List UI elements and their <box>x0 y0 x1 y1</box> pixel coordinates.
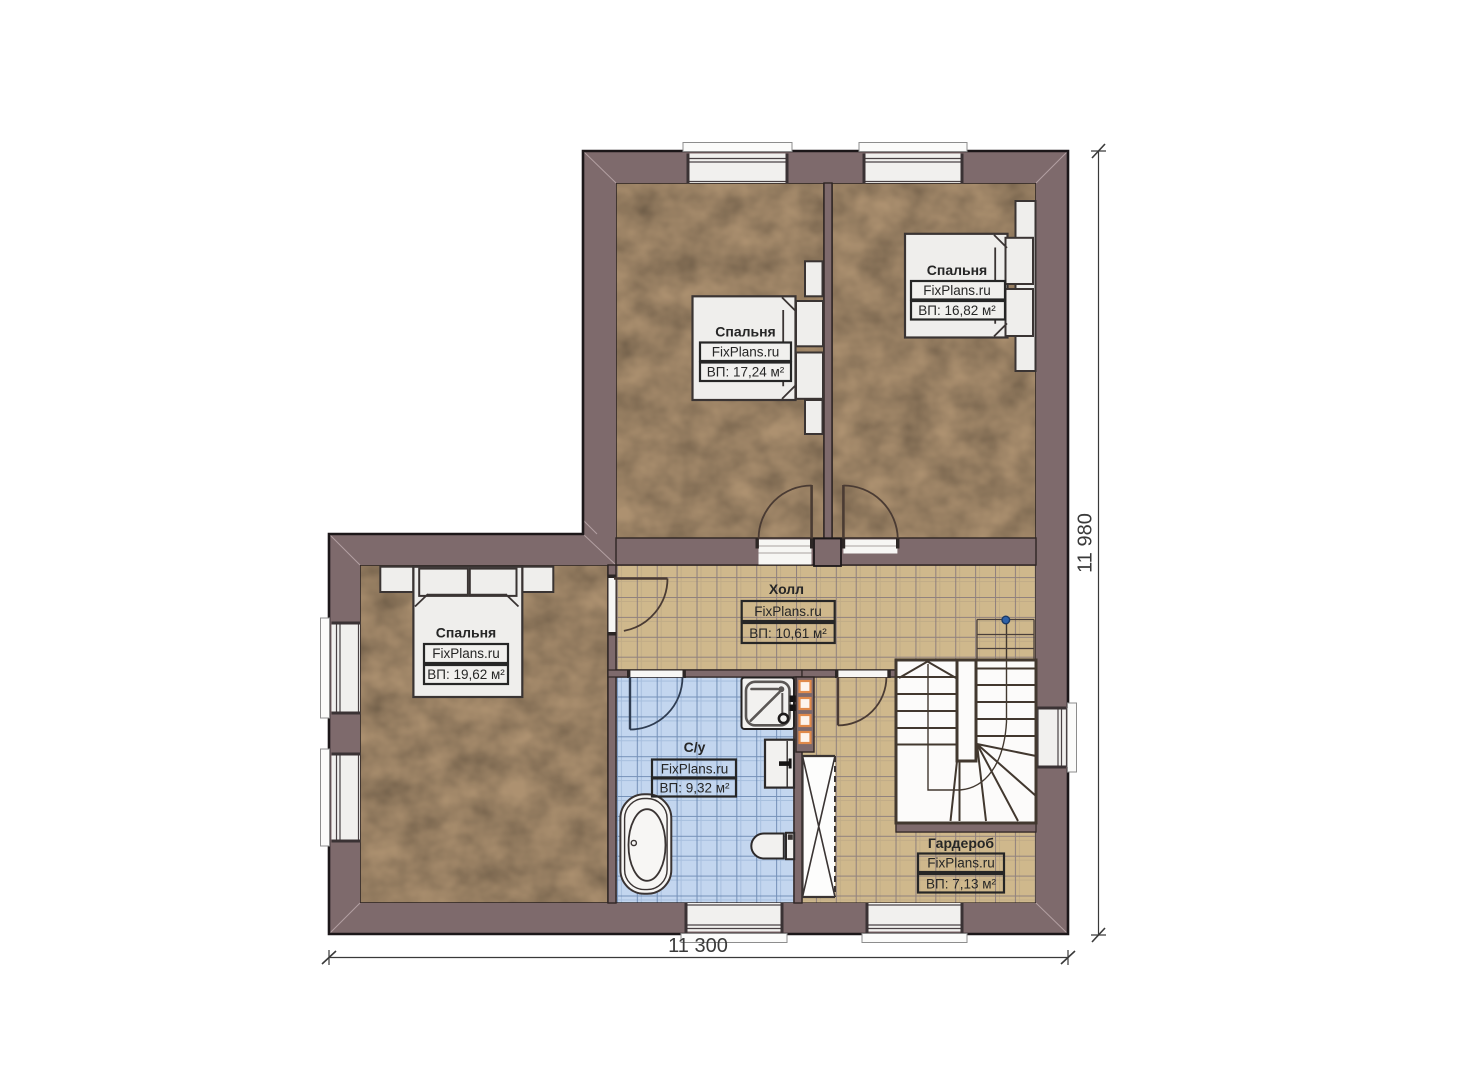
svg-text:ВП: 7,13 м²: ВП: 7,13 м² <box>926 877 997 892</box>
svg-text:Спальня: Спальня <box>927 262 987 278</box>
svg-text:11 980: 11 980 <box>1075 513 1097 573</box>
svg-text:FixPlans.ru: FixPlans.ru <box>712 345 780 360</box>
svg-text:ВП: 9,32 м²: ВП: 9,32 м² <box>659 781 730 796</box>
svg-text:ВП: 10,61 м²: ВП: 10,61 м² <box>749 626 827 641</box>
svg-text:ВП: 19,62 м²: ВП: 19,62 м² <box>427 667 505 682</box>
svg-text:ВП: 17,24 м²: ВП: 17,24 м² <box>707 365 785 380</box>
svg-text:С/у: С/у <box>684 739 706 755</box>
svg-text:11 300: 11 300 <box>668 935 728 957</box>
svg-text:Спальня: Спальня <box>715 324 775 340</box>
svg-text:FixPlans.ru: FixPlans.ru <box>927 856 995 871</box>
svg-text:ВП: 16,82 м²: ВП: 16,82 м² <box>918 303 996 318</box>
svg-text:Холл: Холл <box>769 581 804 597</box>
svg-text:FixPlans.ru: FixPlans.ru <box>754 604 822 619</box>
svg-text:FixPlans.ru: FixPlans.ru <box>661 762 729 777</box>
svg-text:FixPlans.ru: FixPlans.ru <box>923 283 991 298</box>
svg-text:Гардероб: Гардероб <box>928 835 995 851</box>
svg-text:Спальня: Спальня <box>436 625 496 641</box>
svg-text:FixPlans.ru: FixPlans.ru <box>432 646 500 661</box>
